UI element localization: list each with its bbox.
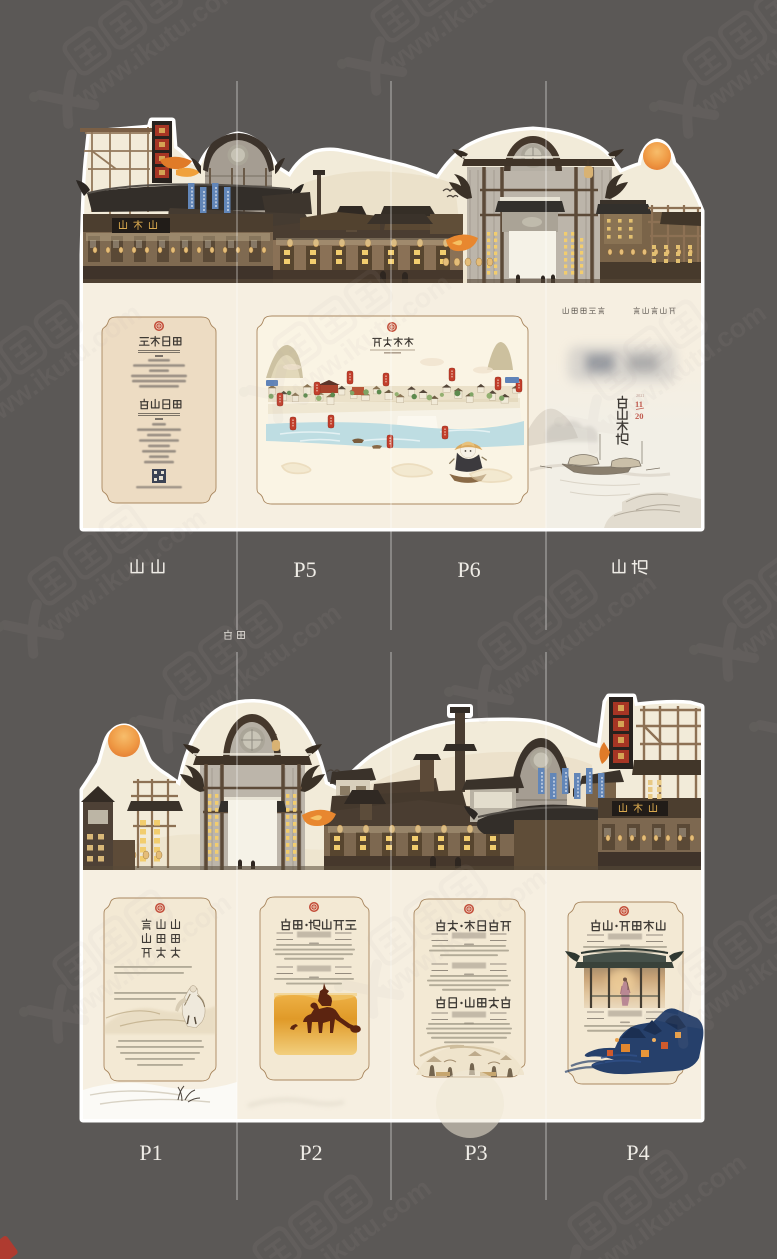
svg-text:P2: P2 bbox=[299, 1140, 322, 1165]
svg-text:P1: P1 bbox=[139, 1140, 162, 1165]
svg-text:www.ikutu.com: www.ikutu.com bbox=[59, 887, 237, 1028]
svg-text:www.ikutu.com: www.ikutu.com bbox=[374, 862, 552, 1003]
svg-text:P3: P3 bbox=[464, 1140, 487, 1165]
svg-text:www.ikutu.com: www.ikutu.com bbox=[594, 297, 772, 438]
svg-text:www.ikutu.com: www.ikutu.com bbox=[377, 0, 555, 80]
svg-text:www.ikutu.com: www.ikutu.com bbox=[729, 525, 777, 666]
svg-text:www.ikutu.com: www.ikutu.com bbox=[169, 597, 347, 738]
svg-text:www.ikutu.com: www.ikutu.com bbox=[484, 567, 662, 708]
svg-text:www.ikutu.com: www.ikutu.com bbox=[279, 267, 457, 408]
svg-text:P4: P4 bbox=[626, 1140, 649, 1165]
svg-text:www.ikutu.com: www.ikutu.com bbox=[0, 297, 147, 438]
svg-text:P5: P5 bbox=[293, 557, 316, 582]
svg-text:P6: P6 bbox=[457, 557, 480, 582]
svg-text:www.ikutu.com: www.ikutu.com bbox=[34, 502, 212, 643]
